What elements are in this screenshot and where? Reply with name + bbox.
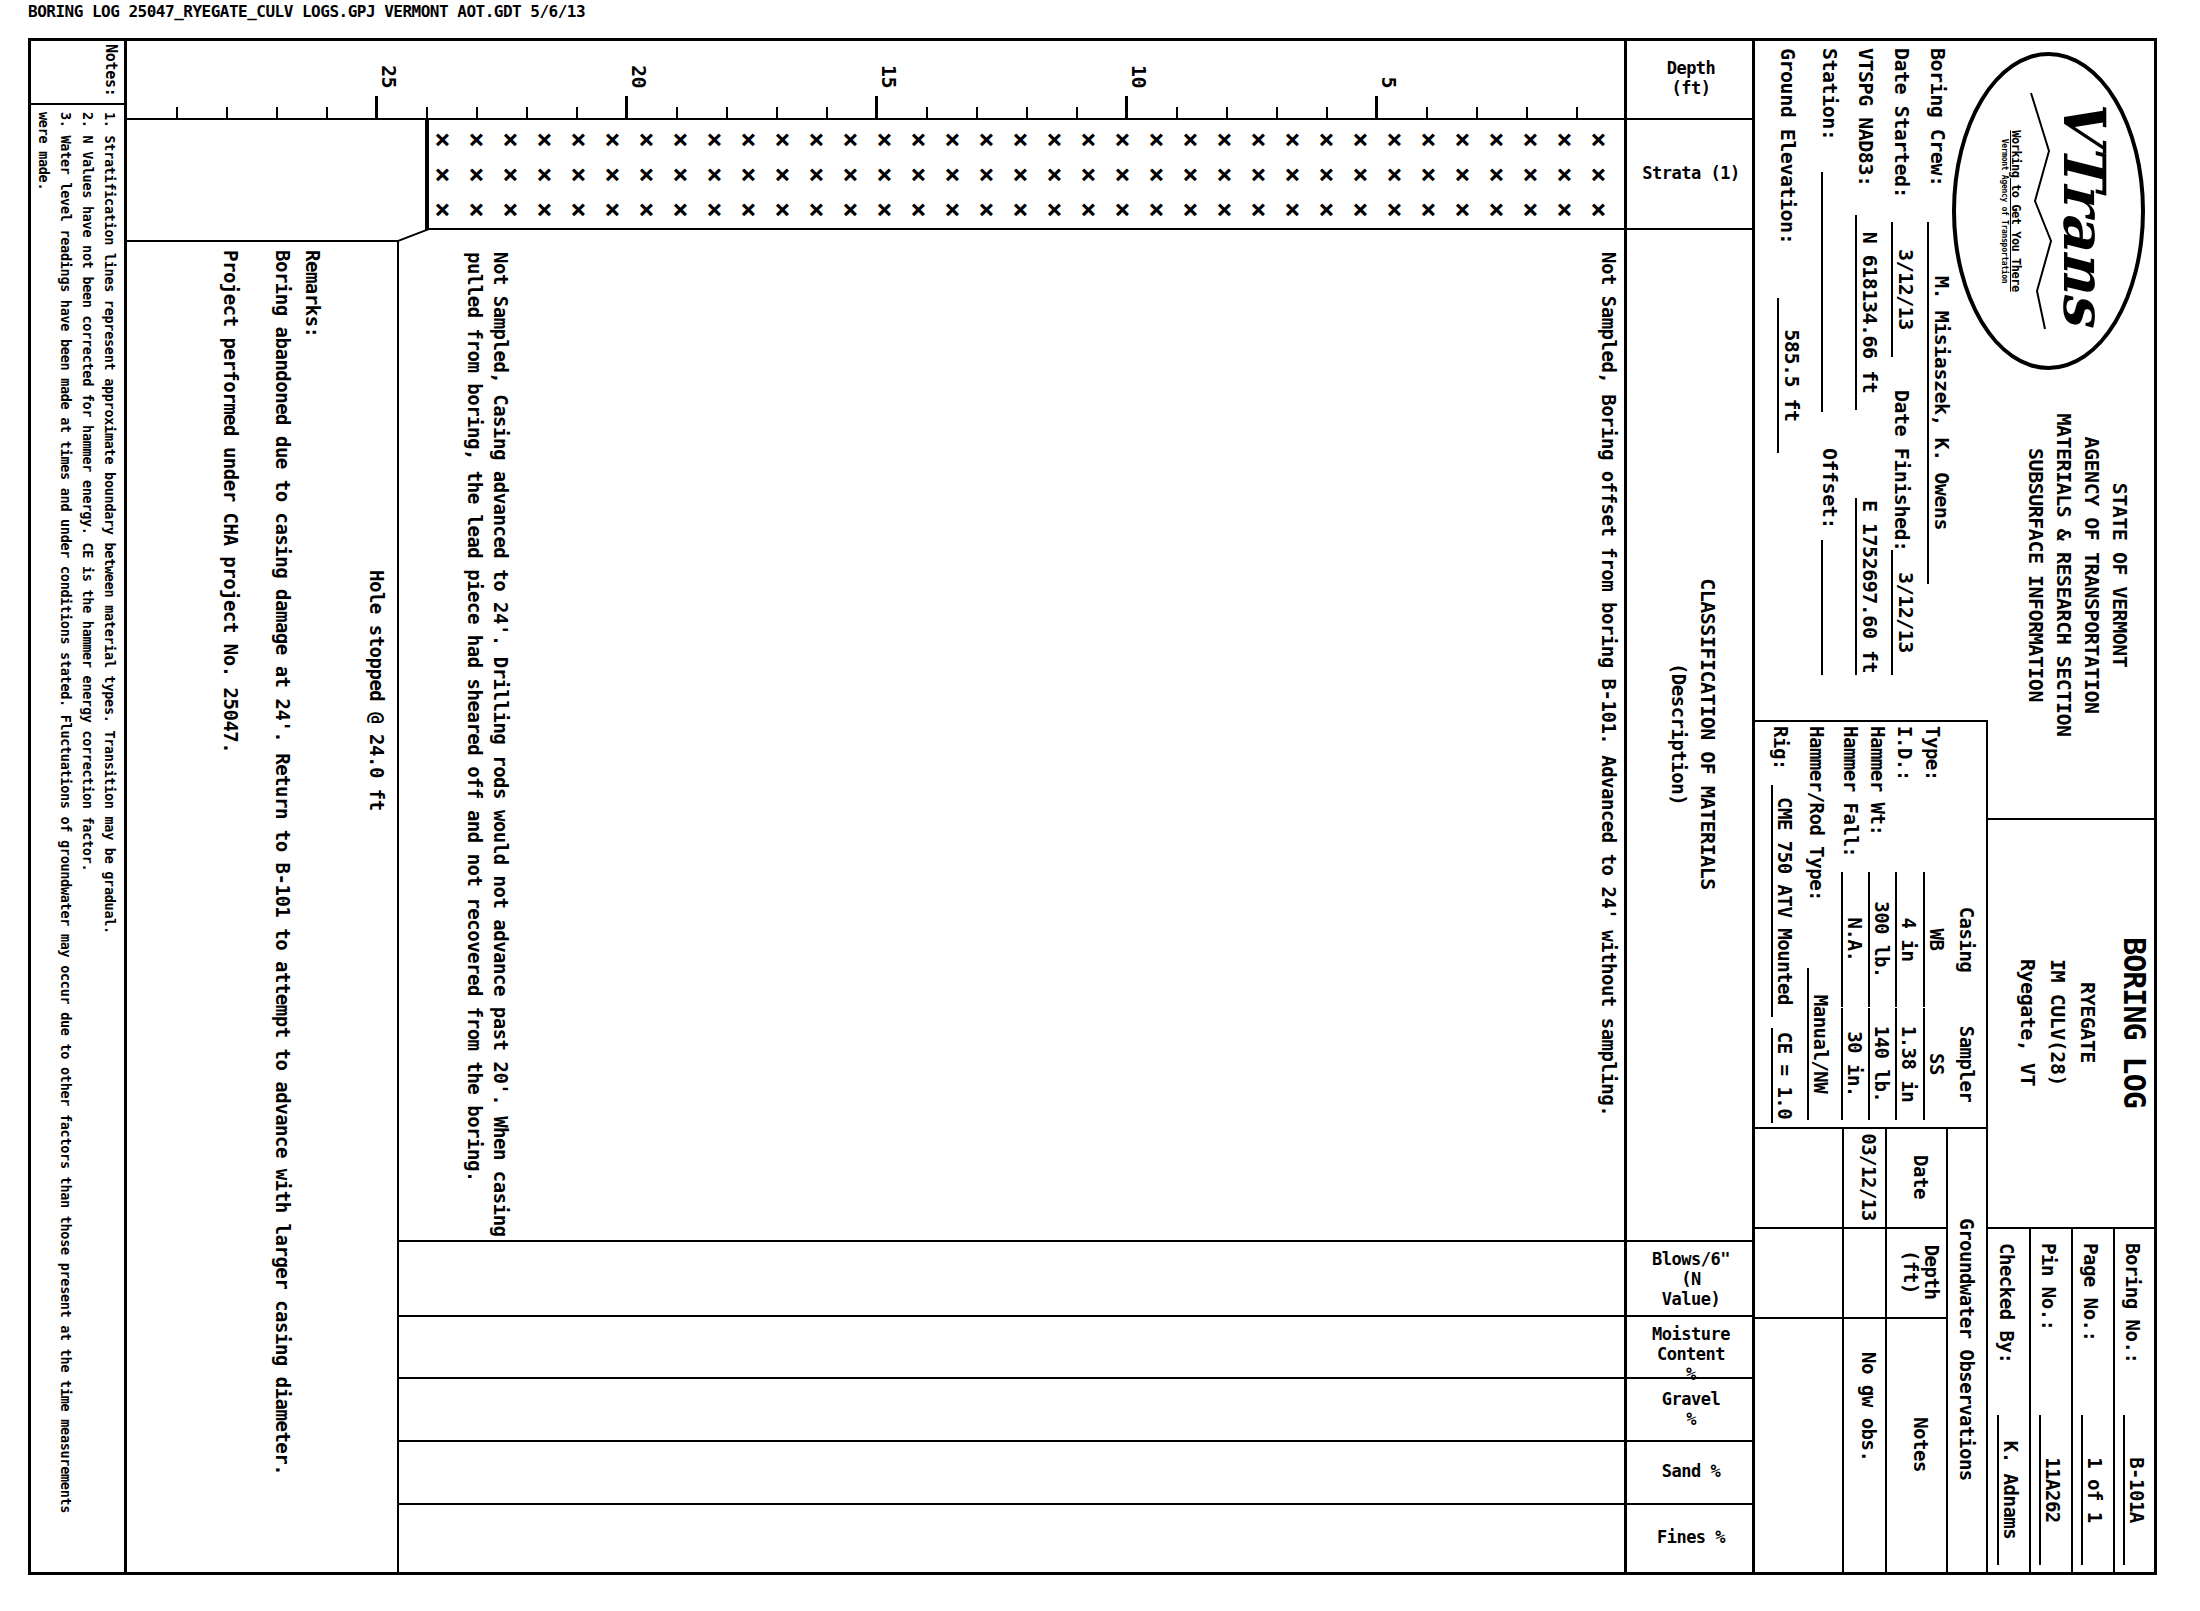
strata-hatch-symbol: × xyxy=(1076,202,1102,218)
strata-hatch-symbol: × xyxy=(464,202,490,218)
strata-hatch-symbol: × xyxy=(498,167,524,183)
strata-hatch-symbol: × xyxy=(906,167,932,183)
gw-row-date: 03/12/13 xyxy=(1858,1127,1880,1227)
boring-crew-value: M. Misiaszek, K. Owens xyxy=(1927,222,1954,584)
note-3: 3. Water level readings have been made a… xyxy=(58,112,74,1572)
remarks-line-1: Boring abandoned due to casing damage at… xyxy=(270,250,296,1565)
vtspg-northing: N 618134.66 ft xyxy=(1855,215,1882,410)
strata-hatch-symbol: × xyxy=(600,132,626,148)
depth-minor-tick xyxy=(976,107,978,118)
strata-hatch-symbol: × xyxy=(1110,132,1136,148)
strata-hatch-symbol: × xyxy=(1076,167,1102,183)
strata-hatch-symbol: × xyxy=(1382,132,1408,148)
strata-hatch-symbol: × xyxy=(1416,202,1442,218)
strata-hatch-symbol: × xyxy=(804,167,830,183)
col-header-classification-sub: (Description) xyxy=(1668,228,1690,1240)
depth-minor-tick xyxy=(576,107,578,118)
line-strata-classification-divider xyxy=(429,228,1755,230)
line-header-mid xyxy=(1986,720,1988,1573)
col-header-moisture: Moisture Content % xyxy=(1627,1315,1755,1377)
vtrans-logo: VTrans Working to Get You There Vermont … xyxy=(1952,52,2145,370)
strata-hatch-symbol: × xyxy=(702,202,728,218)
line-agency-title-divider xyxy=(1988,818,2157,820)
strata-hatch-symbol: × xyxy=(634,202,660,218)
line-hole-bottom xyxy=(397,240,399,1572)
strata-hatch-symbol: × xyxy=(1144,202,1170,218)
logo-subtext: Vermont Agency of Transportation xyxy=(2000,56,2009,366)
strata-hatch-symbol: × xyxy=(770,202,796,218)
strata-hatch-symbol: × xyxy=(634,132,660,148)
strata-hatch-symbol: × xyxy=(1212,167,1238,183)
strata-hatch-symbol: × xyxy=(1348,167,1374,183)
depth-minor-tick xyxy=(1276,107,1278,118)
depth-minor-tick xyxy=(526,107,528,118)
strata-hatch-symbol: × xyxy=(872,167,898,183)
id-casing: 4 in xyxy=(1895,872,1920,1007)
mountain-graphic xyxy=(2029,91,2055,331)
strata-hatch-symbol: × xyxy=(940,132,966,148)
depth-minor-tick xyxy=(1576,107,1578,118)
line-gw-title-bottom xyxy=(1946,1127,1948,1573)
strata-hatch-symbol: × xyxy=(1552,167,1578,183)
hammer-wt-label: Hammer Wt: xyxy=(1867,726,1889,835)
depth-major-tick xyxy=(375,96,378,118)
strata-hatch-symbol: × xyxy=(906,132,932,148)
strata-hatch-symbol: × xyxy=(736,167,762,183)
line-gw-header-bottom xyxy=(1885,1127,1887,1573)
depth-minor-tick xyxy=(826,107,828,118)
ground-elevation-label: Ground Elevation: xyxy=(1776,48,1800,244)
type-label: Type: xyxy=(1922,726,1944,781)
line-infobox-row2 xyxy=(2071,1227,2073,1573)
strata-hatch-symbol: × xyxy=(1518,167,1544,183)
ground-elevation-value: 585.5 ft xyxy=(1777,298,1804,453)
strata-hatch-symbol: × xyxy=(906,202,932,218)
boring-no-value: B-101A xyxy=(2123,1415,2148,1565)
border-top xyxy=(2154,38,2157,1575)
strata-hatch-symbol: × xyxy=(702,167,728,183)
strata-hatch-symbol: × xyxy=(1382,167,1408,183)
strata-hatch-symbol: × xyxy=(1484,167,1510,183)
vtspg-easting: E 1752697.60 ft xyxy=(1855,498,1882,675)
note-2: 2. N Values have not been corrected for … xyxy=(80,112,96,1557)
strata-hatch-symbol: × xyxy=(974,167,1000,183)
line-casing-left xyxy=(1755,720,1988,722)
agency-line-3: MATERIALS & RESEARCH SECTION xyxy=(2050,385,2078,765)
project-town: Ryegate, VT xyxy=(2016,818,2040,1227)
depth-minor-tick xyxy=(326,107,328,118)
strata-hatch-symbol: × xyxy=(430,167,456,183)
depth-label-15: 15 xyxy=(877,36,901,88)
strata-hatch-symbol: × xyxy=(1178,132,1204,148)
page-no-label: Page No.: xyxy=(2080,1243,2102,1341)
strata-hatch-symbol: × xyxy=(770,132,796,148)
strata-hatch-symbol: × xyxy=(1178,202,1204,218)
hammer-rod-label: Hammer/Rod Type: xyxy=(1806,726,1828,901)
strata-hatch-symbol: × xyxy=(1042,202,1068,218)
strata-hatch-symbol: × xyxy=(1586,132,1612,148)
depth-minor-tick xyxy=(176,107,178,118)
station-label: Station: xyxy=(1818,48,1842,140)
line-sand-fines-divider xyxy=(399,1503,1755,1505)
depth-minor-tick xyxy=(726,107,728,118)
strata-hatch-symbol: × xyxy=(1008,132,1034,148)
strata-hatch-symbol: × xyxy=(1110,167,1136,183)
depth-label-25: 25 xyxy=(377,36,401,88)
strata-hatch-symbol: × xyxy=(1076,132,1102,148)
agency-line-1: STATE OF VERMONT xyxy=(2106,385,2134,765)
sampler-column-header: Sampler xyxy=(1956,1008,1978,1120)
strata-hatch-symbol: × xyxy=(464,132,490,148)
strata-hatch-symbol: × xyxy=(566,167,592,183)
strata-hatch-symbol: × xyxy=(1348,202,1374,218)
note-1: 1. Stratification lines represent approx… xyxy=(102,112,118,1557)
strata-hatch-symbol: × xyxy=(1280,167,1306,183)
strata-hatch-symbol: × xyxy=(940,202,966,218)
date-started-label: Date Started: xyxy=(1890,48,1914,198)
line-table-header-top xyxy=(1752,38,1755,1575)
project-number: IM CULV(28) xyxy=(2046,818,2070,1227)
file-header-line: BORING LOG 25047_RYEGATE_CULV LOGS.GPJ V… xyxy=(28,2,788,21)
strata-hatch-symbol: × xyxy=(1450,132,1476,148)
strata-hatch-symbol: × xyxy=(600,167,626,183)
notes-label: Notes: xyxy=(102,44,120,96)
strata-hatch-symbol: × xyxy=(872,132,898,148)
col-header-blows: Blows/6" (N Value) xyxy=(1627,1240,1755,1315)
depth-minor-tick xyxy=(1526,107,1528,118)
strata-hatch-symbol: × xyxy=(1314,167,1340,183)
depth-major-tick xyxy=(1125,96,1128,118)
boring-log-sheet: BORING LOG 25047_RYEGATE_CULV LOGS.GPJ V… xyxy=(0,0,2200,1611)
depth-major-tick xyxy=(1375,96,1378,118)
strata-hatch-symbol: × xyxy=(1484,132,1510,148)
depth-major-tick xyxy=(875,96,878,118)
agency-line-4: SUBSURFACE INFORMATION xyxy=(2022,385,2050,765)
line-infobox-row3 xyxy=(2029,1227,2031,1573)
strata-hatch-symbol: × xyxy=(1552,202,1578,218)
strata-hatch-symbol: × xyxy=(1518,132,1544,148)
rig-ce-value: CE = 1.0 xyxy=(1771,1028,1796,1123)
depth-minor-tick xyxy=(1226,107,1228,118)
hammer-fall-sampler: 30 in. xyxy=(1841,1008,1866,1120)
depth-minor-tick xyxy=(226,107,228,118)
agency-title-block: STATE OF VERMONT AGENCY OF TRANSPORTATIO… xyxy=(2022,385,2134,765)
strata-hatch-symbol: × xyxy=(1280,202,1306,218)
strata-hatch-symbol: × xyxy=(838,132,864,148)
type-sampler: SS xyxy=(1923,1008,1948,1120)
depth-minor-tick xyxy=(1326,107,1328,118)
line-gravel-sand-divider xyxy=(399,1440,1755,1442)
col-header-gravel: Gravel % xyxy=(1627,1377,1755,1440)
strata-hatch-symbol: × xyxy=(1586,202,1612,218)
hole-stopped-note: Hole stopped @ 24.0 ft xyxy=(366,570,388,811)
line-infobox-row1 xyxy=(2113,1227,2115,1573)
strata-hatch-symbol: × xyxy=(464,167,490,183)
hammer-wt-casing: 300 lb. xyxy=(1868,872,1893,1007)
casing-column-header: Casing xyxy=(1956,872,1978,1007)
strata-hatch-symbol: × xyxy=(532,202,558,218)
depth-label-20: 20 xyxy=(627,36,651,88)
strata-hatch-symbol: × xyxy=(1246,167,1272,183)
gw-date-header: Date xyxy=(1910,1127,1932,1227)
line-notes-label-divider xyxy=(31,103,127,105)
strata-hatch-symbol: × xyxy=(1586,167,1612,183)
strata-hatch-symbol: × xyxy=(1042,132,1068,148)
logo-tagline: Working to Get You There xyxy=(2009,56,2023,366)
rig-label: Rig: xyxy=(1770,726,1792,770)
agency-line-2: AGENCY OF TRANSPORTATION xyxy=(2078,385,2106,765)
strata-hatch-symbol: × xyxy=(668,132,694,148)
strata-hatch-symbol: × xyxy=(1178,167,1204,183)
strata-hatch-symbol: × xyxy=(736,132,762,148)
line-gw-row1-bottom xyxy=(1842,1127,1844,1573)
strata-hatch-symbol: × xyxy=(1212,202,1238,218)
hammer-fall-casing: N.A. xyxy=(1841,872,1866,1007)
line-casing-gw-divider xyxy=(1755,1127,1988,1129)
description-stratum-1: Not Sampled, Boring offset from boring B… xyxy=(1596,252,1622,1242)
strata-hatch-symbol: × xyxy=(1280,132,1306,148)
strata-hatch-symbol: × xyxy=(1246,202,1272,218)
strata-hatch-symbol: × xyxy=(1212,132,1238,148)
vtrans-logo-text: VTrans xyxy=(2055,56,2113,366)
sheet-title: BORING LOG xyxy=(2117,818,2152,1227)
line-remarks-left xyxy=(127,240,399,242)
project-name: RYEGATE xyxy=(2076,818,2100,1227)
depth-label-5: 5 xyxy=(1377,36,1401,88)
strata-hatch-symbol: × xyxy=(498,202,524,218)
strata-hatch-symbol: × xyxy=(430,202,456,218)
strata-hatch-symbol: × xyxy=(838,167,864,183)
line-hole-bottom-jog xyxy=(397,228,429,242)
strata-hatch-symbol: × xyxy=(532,167,558,183)
note-3-continued: were made. xyxy=(36,112,52,1557)
strata-hatch-symbol: × xyxy=(668,167,694,183)
station-value xyxy=(1821,172,1846,412)
description-stratum-2: Not Sampled, Casing advanced to 24'. Dri… xyxy=(462,252,514,1247)
border-right xyxy=(28,1572,2157,1575)
checked-by-label: Checked By: xyxy=(1996,1243,2018,1363)
line-classification-blows-divider xyxy=(399,1240,1755,1242)
strata-hatch-symbol: × xyxy=(974,132,1000,148)
boring-log-scan: BORING LOG 25047_RYEGATE_CULV LOGS.GPJ V… xyxy=(0,0,2200,1611)
remarks-label: Remarks: xyxy=(302,250,324,338)
id-sampler: 1.38 in xyxy=(1895,1008,1920,1120)
date-finished-label: Date Finished: xyxy=(1890,390,1914,552)
strata-hatch-symbol: × xyxy=(1042,167,1068,183)
strata-hatch-symbol: × xyxy=(1008,167,1034,183)
strata-hatch-symbol: × xyxy=(974,202,1000,218)
depth-minor-tick xyxy=(1426,107,1428,118)
strata-hatch-symbol: × xyxy=(1110,202,1136,218)
offset-label: Offset: xyxy=(1818,448,1842,529)
line-moisture-gravel-divider xyxy=(399,1377,1755,1379)
strata-hatch-symbol: × xyxy=(804,132,830,148)
col-header-strata: Strata (1) xyxy=(1627,118,1755,228)
strata-hatch-symbol: × xyxy=(940,167,966,183)
strata-hatch-symbol: × xyxy=(804,202,830,218)
depth-major-tick xyxy=(625,96,628,118)
depth-minor-tick xyxy=(1176,107,1178,118)
depth-minor-tick xyxy=(426,107,428,118)
strata-hatch-symbol: × xyxy=(1008,202,1034,218)
depth-minor-tick xyxy=(1476,107,1478,118)
date-finished-value: 3/12/13 xyxy=(1891,550,1918,675)
strata-hatch-symbol: × xyxy=(1144,132,1170,148)
id-label: I.D.: xyxy=(1894,726,1916,781)
border-bottom xyxy=(28,38,31,1575)
vtspg-label: VTSPG NAD83: xyxy=(1854,48,1878,187)
strata-hatch-symbol: × xyxy=(498,132,524,148)
line-gw-col1 xyxy=(1755,1227,1948,1229)
pin-no-label: Pin No.: xyxy=(2038,1243,2060,1331)
depth-minor-tick xyxy=(1076,107,1078,118)
groundwater-title: Groundwater Observations xyxy=(1956,1127,1978,1572)
strata-hatch-symbol: × xyxy=(702,132,728,148)
boring-no-label: Boring No.: xyxy=(2122,1243,2144,1363)
depth-minor-tick xyxy=(926,107,928,118)
depth-minor-tick xyxy=(476,107,478,118)
offset-value xyxy=(1821,540,1846,675)
strata-hatch-symbol: × xyxy=(566,202,592,218)
strata-hatch-symbol: × xyxy=(770,167,796,183)
remarks-line-2: Project performed under CHA project No. … xyxy=(218,250,244,1565)
checked-by-value: K. Adnams xyxy=(1997,1415,2022,1565)
strata-hatch-symbol: × xyxy=(1314,132,1340,148)
hammer-fall-label: Hammer Fall: xyxy=(1840,726,1862,857)
strata-hatch-symbol: × xyxy=(1416,132,1442,148)
depth-minor-tick xyxy=(776,107,778,118)
line-table-header-bottom xyxy=(1624,38,1627,1575)
gw-notes-header: Notes xyxy=(1910,1317,1932,1572)
strata-hatch-symbol: × xyxy=(430,132,456,148)
type-casing: WB xyxy=(1923,872,1948,1007)
hammer-wt-sampler: 140 lb. xyxy=(1868,1008,1893,1120)
line-notes-top xyxy=(124,38,127,1575)
strata-hatch-symbol: × xyxy=(1450,202,1476,218)
strata-hatch-symbol: × xyxy=(1144,167,1170,183)
line-blows-moisture-divider xyxy=(399,1315,1755,1317)
pin-no-value: 11A262 xyxy=(2039,1415,2064,1565)
col-header-classification: CLASSIFICATION OF MATERIALS xyxy=(1696,228,1720,1240)
gw-row-notes: No gw obs. xyxy=(1858,1352,1880,1461)
strata-hatch-symbol: × xyxy=(1518,202,1544,218)
strata-hatch-symbol: × xyxy=(838,202,864,218)
depth-label-10: 10 xyxy=(1127,36,1151,88)
strata-hatch-symbol: × xyxy=(872,202,898,218)
strata-hatch-symbol: × xyxy=(600,202,626,218)
line-gw-col2 xyxy=(1755,1317,1948,1319)
border-left xyxy=(28,38,2157,41)
col-header-sand: Sand % xyxy=(1627,1440,1755,1503)
strata-hatch-symbol: × xyxy=(566,132,592,148)
depth-minor-tick xyxy=(676,107,678,118)
line-depth-strata-divider xyxy=(127,118,1755,120)
strata-hatch-symbol: × xyxy=(1416,167,1442,183)
strata-hatch-symbol: × xyxy=(1450,167,1476,183)
depth-minor-tick xyxy=(276,107,278,118)
strata-hatch-symbol: × xyxy=(1314,202,1340,218)
strata-hatch-symbol: × xyxy=(532,132,558,148)
line-hole-bottom-strata xyxy=(425,118,429,230)
page-no-value: 1 of 1 xyxy=(2081,1415,2106,1565)
col-header-depth: Depth (ft) xyxy=(1627,38,1755,118)
strata-hatch-symbol: × xyxy=(1484,202,1510,218)
gw-depth-header: Depth (ft) xyxy=(1900,1227,1942,1317)
col-header-fines: Fines % xyxy=(1627,1503,1755,1572)
strata-hatch-symbol: × xyxy=(1246,132,1272,148)
strata-hatch-symbol: × xyxy=(1348,132,1374,148)
strata-hatch-symbol: × xyxy=(736,202,762,218)
strata-hatch-symbol: × xyxy=(634,167,660,183)
strata-hatch-symbol: × xyxy=(668,202,694,218)
strata-hatch-symbol: × xyxy=(1552,132,1578,148)
boring-crew-label: Boring Crew: xyxy=(1926,48,1950,187)
date-started-value: 3/12/13 xyxy=(1891,222,1918,357)
hammer-rod-value: Manual/NW xyxy=(1807,968,1832,1120)
depth-minor-tick xyxy=(1026,107,1028,118)
rig-value: CME 750 ATV Mounted xyxy=(1771,785,1796,1017)
strata-hatch-symbol: × xyxy=(1382,202,1408,218)
